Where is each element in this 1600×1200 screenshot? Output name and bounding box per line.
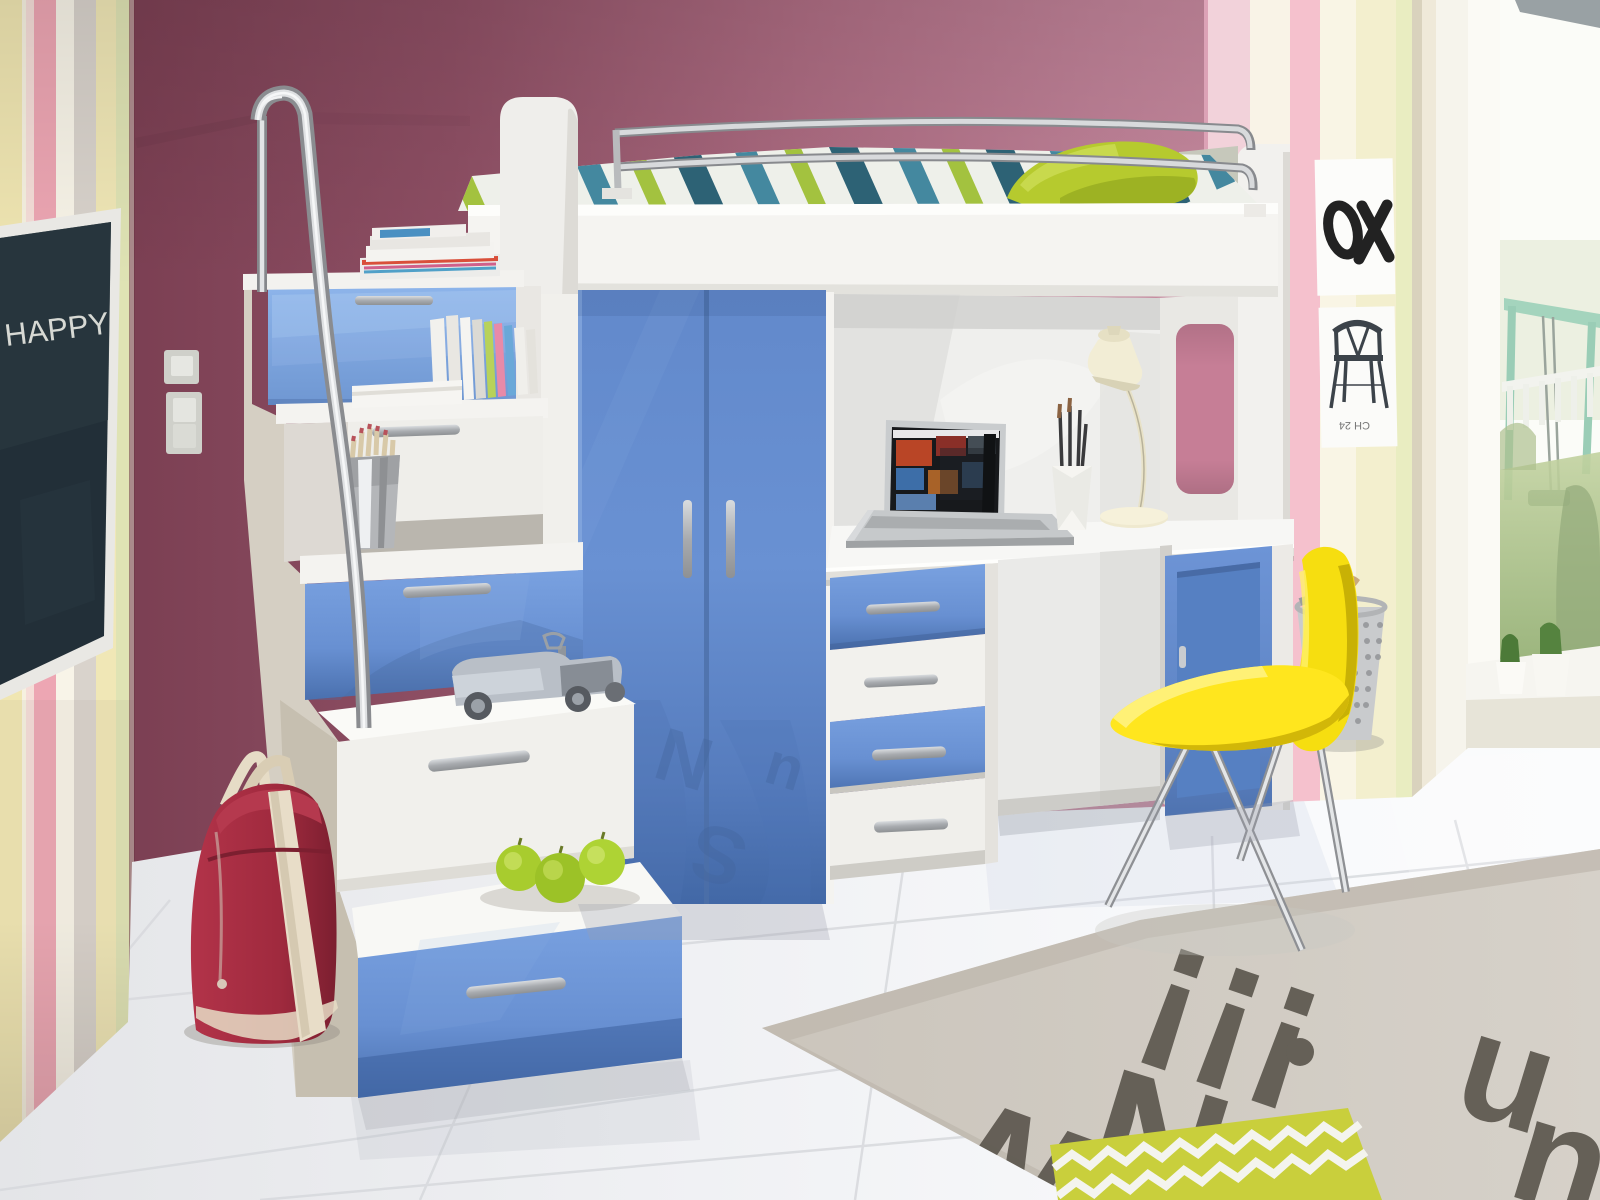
svg-text:CH 24: CH 24 bbox=[1339, 419, 1370, 431]
